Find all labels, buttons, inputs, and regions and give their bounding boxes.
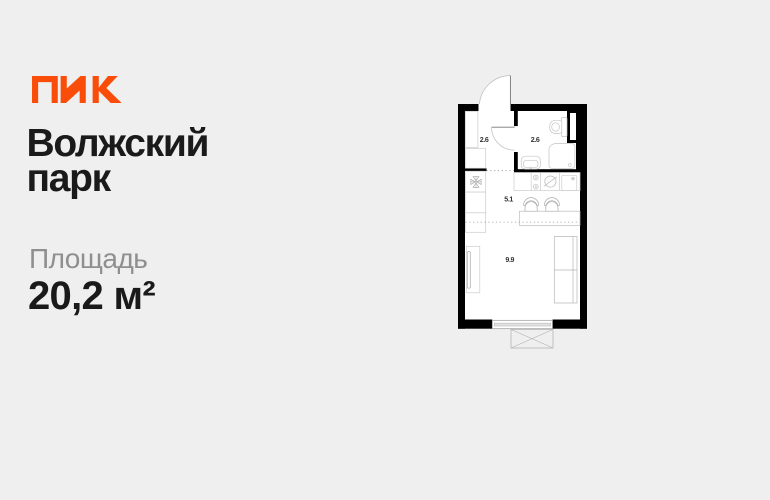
svg-text:5.1: 5.1 [504, 194, 513, 203]
svg-text:9.9: 9.9 [505, 255, 514, 264]
svg-text:2.6: 2.6 [531, 135, 540, 144]
svg-text:2.6: 2.6 [480, 135, 489, 144]
